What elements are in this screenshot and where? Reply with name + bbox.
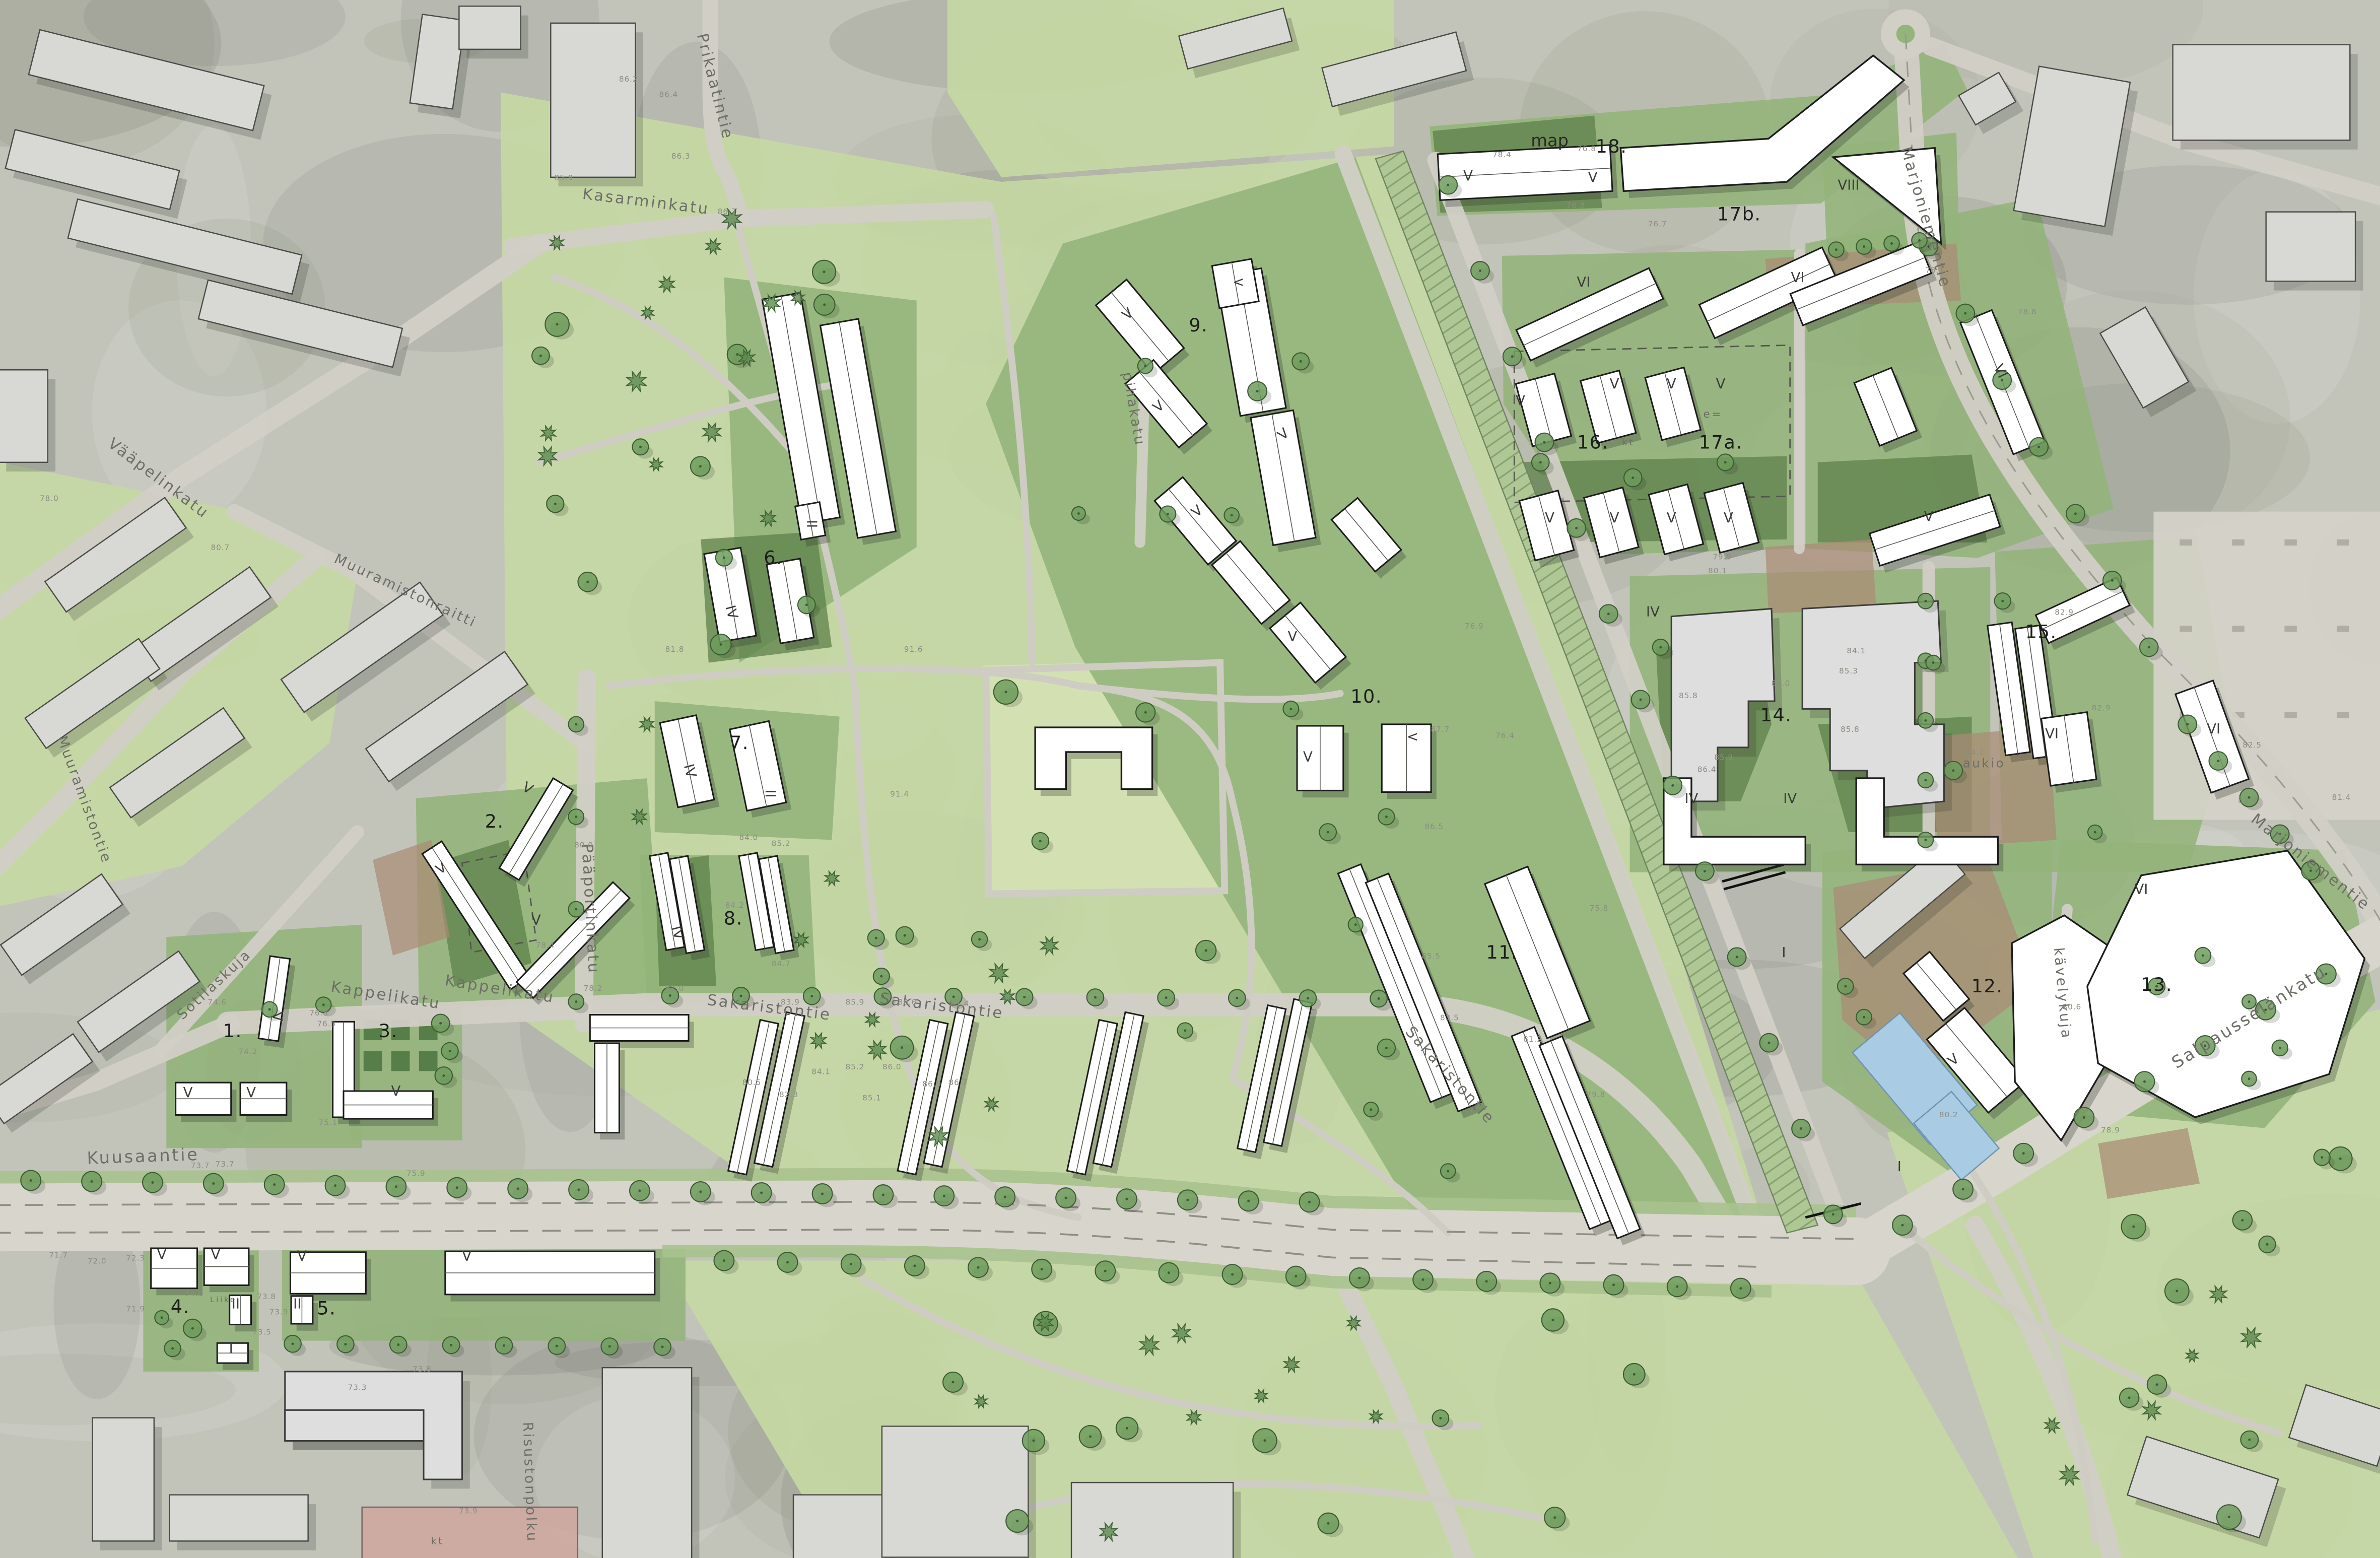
tree-center-dot [2074,512,2077,515]
spot-elevation-label: 85.2 [845,1062,864,1071]
tree-center-dot [191,1327,194,1330]
tree-center-dot [556,1345,558,1347]
parked-car [2284,712,2296,718]
spot-elevation-label: 83.9 [781,998,800,1007]
spot-elevation-label: 85.9 [845,998,864,1007]
floor-count-label: V [1588,169,1598,185]
annotation-label: kt [1622,437,1635,448]
tree-center-dot [442,1074,445,1077]
tree-center-dot [322,1003,325,1006]
spot-elevation-label: 79.9 [1713,553,1732,562]
hedge-square [419,1051,438,1071]
existing-building [2173,45,2350,141]
tree-center-dot [1378,997,1380,1000]
tree-center-dot [1724,461,1727,463]
floor-count-label: VI [2207,721,2220,737]
parked-car [2232,539,2244,546]
spot-elevation-label: 86.6 [898,998,917,1007]
spot-elevation-label: 76.8 [1577,144,1596,153]
spot-elevation-label: 73.8 [257,1292,276,1301]
block-number-label: 14. [1760,704,1792,726]
existing-building [285,1410,424,1441]
existing-building [793,1495,886,1558]
spot-elevation-label: 73.7 [216,1160,235,1169]
tree-center-dot [953,995,955,998]
tree-center-dot [1247,1200,1250,1202]
spot-elevation-label: 84.1 [1847,646,1866,655]
tree-center-dot [1924,719,1927,722]
spot-elevation-label: 82.9 [2092,703,2111,712]
floor-count-label: < [1233,274,1244,290]
spot-elevation-label: 85.8 [1841,725,1860,734]
spot-elevation-label: 80.5 [742,1078,762,1087]
floor-count-label: V [1724,510,1733,526]
existing-building [0,370,48,462]
existing-building [551,23,635,177]
tree-center-dot [1918,239,1921,242]
block-number-label: 2. [485,810,504,832]
tree-center-dot [638,1189,641,1192]
tree-center-dot [1844,985,1847,988]
tree-center-dot [91,1180,93,1183]
tree-center-dot [2094,831,2096,834]
floor-count-label: IV [1684,790,1698,806]
tree-center-dot [805,603,808,606]
tree-center-dot [554,503,557,505]
tree-center-dot [1004,691,1007,693]
tree-center-dot [1023,996,1026,998]
hedge-square [391,1051,410,1071]
spot-elevation-label: 86.4 [1697,765,1717,774]
spot-elevation-label: 81.2 [1523,1035,1542,1044]
spot-elevation-label: 80.0 [574,841,593,850]
floor-count-label: V [1716,376,1726,392]
tree-center-dot [904,934,906,937]
existing-building [2266,212,2355,282]
tree-center-dot [161,1316,163,1319]
hedge-square [364,1051,382,1071]
existing-building [459,6,520,49]
tree-center-dot [723,557,725,559]
parked-car [2337,539,2349,546]
tree-center-dot [575,723,577,725]
existing-building [92,1418,154,1541]
spot-elevation-label: 73.9 [459,1506,478,1515]
block-number-label: 9. [1189,314,1208,336]
tree-center-dot [575,908,577,911]
floor-count-label: V [297,1248,307,1264]
spot-elevation-label: 76.7 [1648,220,1667,229]
tree-center-dot [1039,840,1042,842]
tree-center-dot [1422,1278,1424,1281]
spot-elevation-label: 86.5 [1424,822,1444,831]
tree-center-dot [212,1182,215,1185]
floor-count-label: V [246,1085,256,1101]
spot-elevation-label: 76.8 [309,1008,328,1018]
tree-center-dot [823,303,826,306]
tree-center-dot [1447,184,1449,186]
parked-car [2284,626,2296,632]
floor-count-label: V [531,912,541,928]
tree-center-dot [1307,997,1309,999]
tree-center-dot [1033,1439,1035,1442]
spot-elevation-label: 81.4 [2332,793,2351,802]
tree-center-dot [575,1000,577,1003]
floor-count-label: V [183,1085,193,1101]
tree-center-dot [273,1183,276,1186]
tree-center-dot [2248,1000,2251,1003]
tree-center-dot [268,1008,271,1010]
tree-center-dot [2321,1156,2323,1159]
tree-center-dot [586,581,589,583]
masterplan-canvas: 1.2.3.4.5.6.7.8.9.10.11.12.13.14.15.16.1… [0,0,2380,1558]
tree-center-dot [1447,1170,1449,1173]
spot-elevation-label: 85.5 [1421,952,1441,961]
spot-elevation-label: 84.7 [772,959,791,968]
tree-center-dot [1962,1188,1964,1190]
block-number-label: 4. [171,1296,190,1318]
tree-center-dot [901,1046,903,1049]
floor-count-label: V [1545,510,1554,526]
tree-center-dot [2022,1152,2025,1155]
tree-center-dot [1704,870,1706,872]
spot-elevation-label: 84.7 [1965,748,1985,757]
floor-count-label: V [462,1248,471,1264]
spot-elevation-label: 73.8 [413,1365,432,1374]
tree-center-dot [1231,1273,1234,1276]
tree-center-dot [1236,997,1238,999]
tree-center-dot [669,994,671,997]
tree-center-dot [2148,646,2150,648]
floor-count-label: VI [2045,725,2059,741]
tree-center-dot [456,1186,458,1189]
tree-center-dot [1767,1042,1770,1044]
tree-center-dot [1231,514,1233,516]
tree-center-dot [810,995,813,997]
tree-center-dot [1539,461,1542,463]
floor-count-label: VI [1791,269,1805,286]
spot-elevation-label: 82.3 [779,1090,798,1099]
tree-center-dot [2156,1383,2158,1386]
spot-elevation-label: 71.9 [126,1305,145,1314]
spot-elevation-label: 73.9 [269,1308,289,1317]
tree-center-dot [2339,1158,2342,1160]
spot-elevation-label: 75.8 [1590,904,1609,913]
parked-car [2180,626,2192,632]
tree-center-dot [1264,1439,1266,1442]
tree-center-dot [639,446,642,448]
spot-elevation-label: 76.4 [1495,731,1515,740]
tree-center-dot [723,1259,725,1262]
tree-center-dot [2279,1047,2281,1049]
parked-car [2337,712,2349,718]
tree-center-dot [850,1263,852,1265]
tree-center-dot [1739,1287,1742,1290]
tree-center-dot [1168,1271,1170,1274]
tree-center-dot [2111,579,2114,582]
tree-center-dot [1835,248,1838,251]
block-number-label: 17b. [1717,203,1761,225]
tree-center-dot [1543,441,1545,444]
tree-center-dot [2001,379,2003,381]
tree-center-dot [2175,1290,2178,1292]
annotation-label: aukio [1963,756,2006,771]
tree-center-dot [1300,360,1302,363]
block-number-label: 15. [2025,621,2057,643]
floor-count-label: V [1303,749,1313,765]
tree-center-dot [556,323,559,326]
tree-center-dot [1553,1516,1556,1519]
tree-center-dot [1289,708,1292,710]
floor-count-label: VIII [1838,177,1859,193]
tree-center-dot [1924,779,1927,781]
tree-center-dot [1924,600,1927,602]
annotation-label: kt [431,1536,444,1546]
spot-elevation-label: 80.6 [2063,1002,2082,1011]
parked-car [2232,626,2244,632]
tree-center-dot [1924,839,1927,841]
tree-center-dot [2248,1077,2251,1080]
tree-center-dot [1952,769,1954,772]
tree-center-dot [821,1193,824,1195]
spot-elevation-label: 91.6 [904,645,923,654]
tree-center-dot [1094,996,1097,999]
floor-count-label: I [1897,1159,1901,1175]
tree-center-dot [1612,1283,1615,1286]
tree-center-dot [2132,1226,2135,1228]
tree-center-dot [2143,1080,2146,1083]
spot-elevation-label: 84.1 [811,1067,831,1076]
annotation-label: e= [1704,408,1723,421]
tree-center-dot [1370,1108,1372,1111]
spot-elevation-label: 86.7 [718,207,737,216]
tree-center-dot [1890,242,1893,245]
parked-car [2284,539,2296,546]
tree-center-dot [1205,950,1207,952]
tree-center-dot [2128,1396,2131,1399]
tree-center-dot [292,1342,294,1345]
tree-center-dot [1575,527,1578,529]
tree-center-dot [30,1179,32,1182]
spot-elevation-label: 78.2 [584,984,603,993]
tree-center-dot [913,1264,916,1267]
tree-center-dot [1676,1285,1678,1288]
spot-elevation-label: 73.3 [348,1383,367,1392]
spot-elevation-label: 78.4 [536,940,555,950]
spot-elevation-label: 85.2 [772,839,791,848]
tree-center-dot [1295,1275,1297,1277]
floor-count-label: V [391,1083,401,1099]
spot-elevation-label: 81.8 [665,645,685,654]
tree-center-dot [1640,698,1642,701]
block-number-label: 6. [764,547,783,569]
tree-center-dot [823,270,826,273]
spot-elevation-label: 74.6 [184,1289,203,1298]
floor-count-label: V [1463,168,1473,184]
tree-center-dot [503,1344,505,1347]
tree-center-dot [880,975,882,978]
tree-center-dot [875,937,877,939]
spot-elevation-label: 87.7 [1431,725,1450,734]
spot-elevation-label: 78.0 [40,494,59,503]
tree-center-dot [395,1185,397,1188]
tree-center-dot [2001,600,2004,602]
floor-count-label: V [1667,510,1676,526]
tree-center-dot [2248,1439,2251,1441]
block-number-label: 10. [1350,686,1382,707]
tree-center-dot [1065,1197,1067,1199]
spot-elevation-label: 78.8 [2018,307,2037,316]
spot-elevation-label: 74.6 [208,998,227,1007]
block-number-label: 1. [223,1020,242,1042]
floor-count-label: II [293,1296,301,1312]
floor-count-label: VI [1577,274,1590,290]
floor-count-label: I [229,1340,233,1357]
spot-elevation-label: 75.9 [406,1169,426,1178]
spot-elevation-label: 87.4 [950,999,969,1008]
spot-elevation-label: 75.1 [319,1118,338,1127]
spot-elevation-label: 86.0 [1771,679,1790,688]
existing-building [1071,1482,1233,1558]
annotation-label: Liike [210,1295,237,1304]
tree-center-dot [978,938,981,940]
tree-center-dot [1659,646,1662,648]
floor-count-label: V [157,1246,167,1262]
tree-center-dot [1104,1270,1107,1272]
tree-center-dot [1551,1319,1554,1321]
tree-center-dot [1385,816,1388,818]
tree-center-dot [760,1191,763,1194]
tree-center-dot [1607,613,1610,615]
tree-center-dot [1358,1277,1361,1279]
tree-center-dot [1144,711,1147,714]
spot-elevation-label: 80.1 [1708,566,1727,575]
tree-center-dot [1479,269,1481,272]
tree-center-dot [1385,1047,1388,1049]
spot-elevation-label: 83.5 [1440,1013,1459,1022]
spot-elevation-label: 73.7 [191,1161,210,1170]
floor-count-label: II [762,789,778,797]
tree-center-dot [1901,1224,1903,1227]
block-number-label: 11. [1486,941,1518,963]
street-name-label: Kuusaantie [87,1144,199,1168]
floor-count-label: V [1667,376,1676,392]
tree-center-dot [1832,1213,1834,1215]
spot-elevation-label: 86.3 [671,152,691,161]
tree-center-dot [1089,1435,1092,1438]
tree-center-dot [720,643,722,646]
spot-elevation-label: 81.7 [2238,796,2257,805]
tree-center-dot [539,355,542,357]
floor-count-label: V [1516,393,1525,409]
tree-center-dot [2037,446,2040,448]
tree-center-dot [1327,1522,1330,1525]
tree-center-dot [450,1344,452,1346]
tree-center-dot [334,1184,336,1187]
block-number-label: 5. [317,1298,336,1319]
floor-count-label: II [804,520,820,528]
spot-elevation-label: 86.0 [882,1062,902,1071]
tree-center-dot [2228,1516,2230,1518]
tree-center-dot [151,1181,154,1184]
tree-center-dot [1041,1268,1043,1270]
tree-center-dot [882,1194,885,1196]
tree-center-dot [786,1261,789,1264]
tree-center-dot [1964,312,1966,315]
floor-count-label: < [1407,729,1418,745]
spot-elevation-label: 78.1 [1925,266,1944,275]
tree-center-dot [699,465,702,467]
tree-center-dot [1144,365,1146,367]
tree-center-dot [1511,355,1514,358]
floor-count-label: IV [1783,790,1797,806]
spot-elevation-label: 86.9 [922,1079,941,1089]
tree-center-dot [397,1343,399,1346]
tree-center-dot [1256,390,1259,392]
tree-center-dot [1671,784,1674,787]
spot-elevation-label: 85.9 [554,173,573,182]
tree-center-dot [1308,1201,1311,1203]
spot-elevation-label: 80.2 [1939,1110,1958,1119]
spot-elevation-label: 74.2 [239,1047,258,1056]
tree-center-dot [1633,1373,1636,1376]
tree-center-dot [1077,512,1080,515]
spot-elevation-label: 82.5 [2242,740,2262,750]
tree-center-dot [1863,245,1865,248]
spot-elevation-label: 85.9 [1714,753,1733,762]
site-plan-map: 1.2.3.4.5.6.7.8.9.10.11.12.13.14.15.16.1… [0,0,2380,1558]
tree-center-dot [2241,1219,2243,1222]
tree-center-dot [1125,1198,1128,1200]
tree-center-dot [1004,1196,1006,1198]
tree-center-dot [1184,1029,1186,1032]
spot-elevation-label: 81.0 [665,984,685,993]
floor-count-label: V [1924,508,1934,524]
tree-center-dot [1167,513,1169,515]
tree-center-dot [1800,1127,1802,1130]
block-number-label: 7. [730,732,749,754]
spot-elevation-label: 84.0 [739,833,758,842]
spot-elevation-label: 71.7 [49,1250,68,1259]
spot-elevation-label: 82.9 [2055,608,2074,617]
tree-center-dot [344,1343,347,1345]
spot-elevation-label: 85.3 [1839,666,1858,675]
paved-plaza [1765,539,1876,614]
block-number-label: 3. [379,1020,398,1042]
spot-elevation-label: 76.9 [1465,622,1484,631]
tree-center-dot [661,1345,664,1348]
tree-center-dot [1863,1016,1865,1019]
spot-elevation-label: 86.2 [619,75,638,84]
spot-elevation-label: 79.8 [1587,1090,1606,1099]
tree-center-dot [1354,923,1357,926]
annotation-label: map [1531,131,1569,151]
floor-count-label: V [1610,510,1619,526]
floor-count-label: VI [2134,881,2148,897]
tree-center-dot [1126,1427,1128,1430]
block-number-label: 18. [1595,136,1627,157]
spot-elevation-label: 78.9 [2101,1126,2120,1135]
tree-center-dot [1327,831,1329,834]
tree-center-dot [1631,477,1634,479]
tree-center-dot [608,1345,611,1348]
floor-count-label: V [211,1246,221,1262]
floor-count-label: I [1782,944,1786,961]
spot-elevation-label: 76.8 [1567,201,1586,210]
existing-building [882,1426,1029,1557]
floor-count-label: IV [1646,604,1660,620]
block-number-label: 16. [1577,431,1609,453]
